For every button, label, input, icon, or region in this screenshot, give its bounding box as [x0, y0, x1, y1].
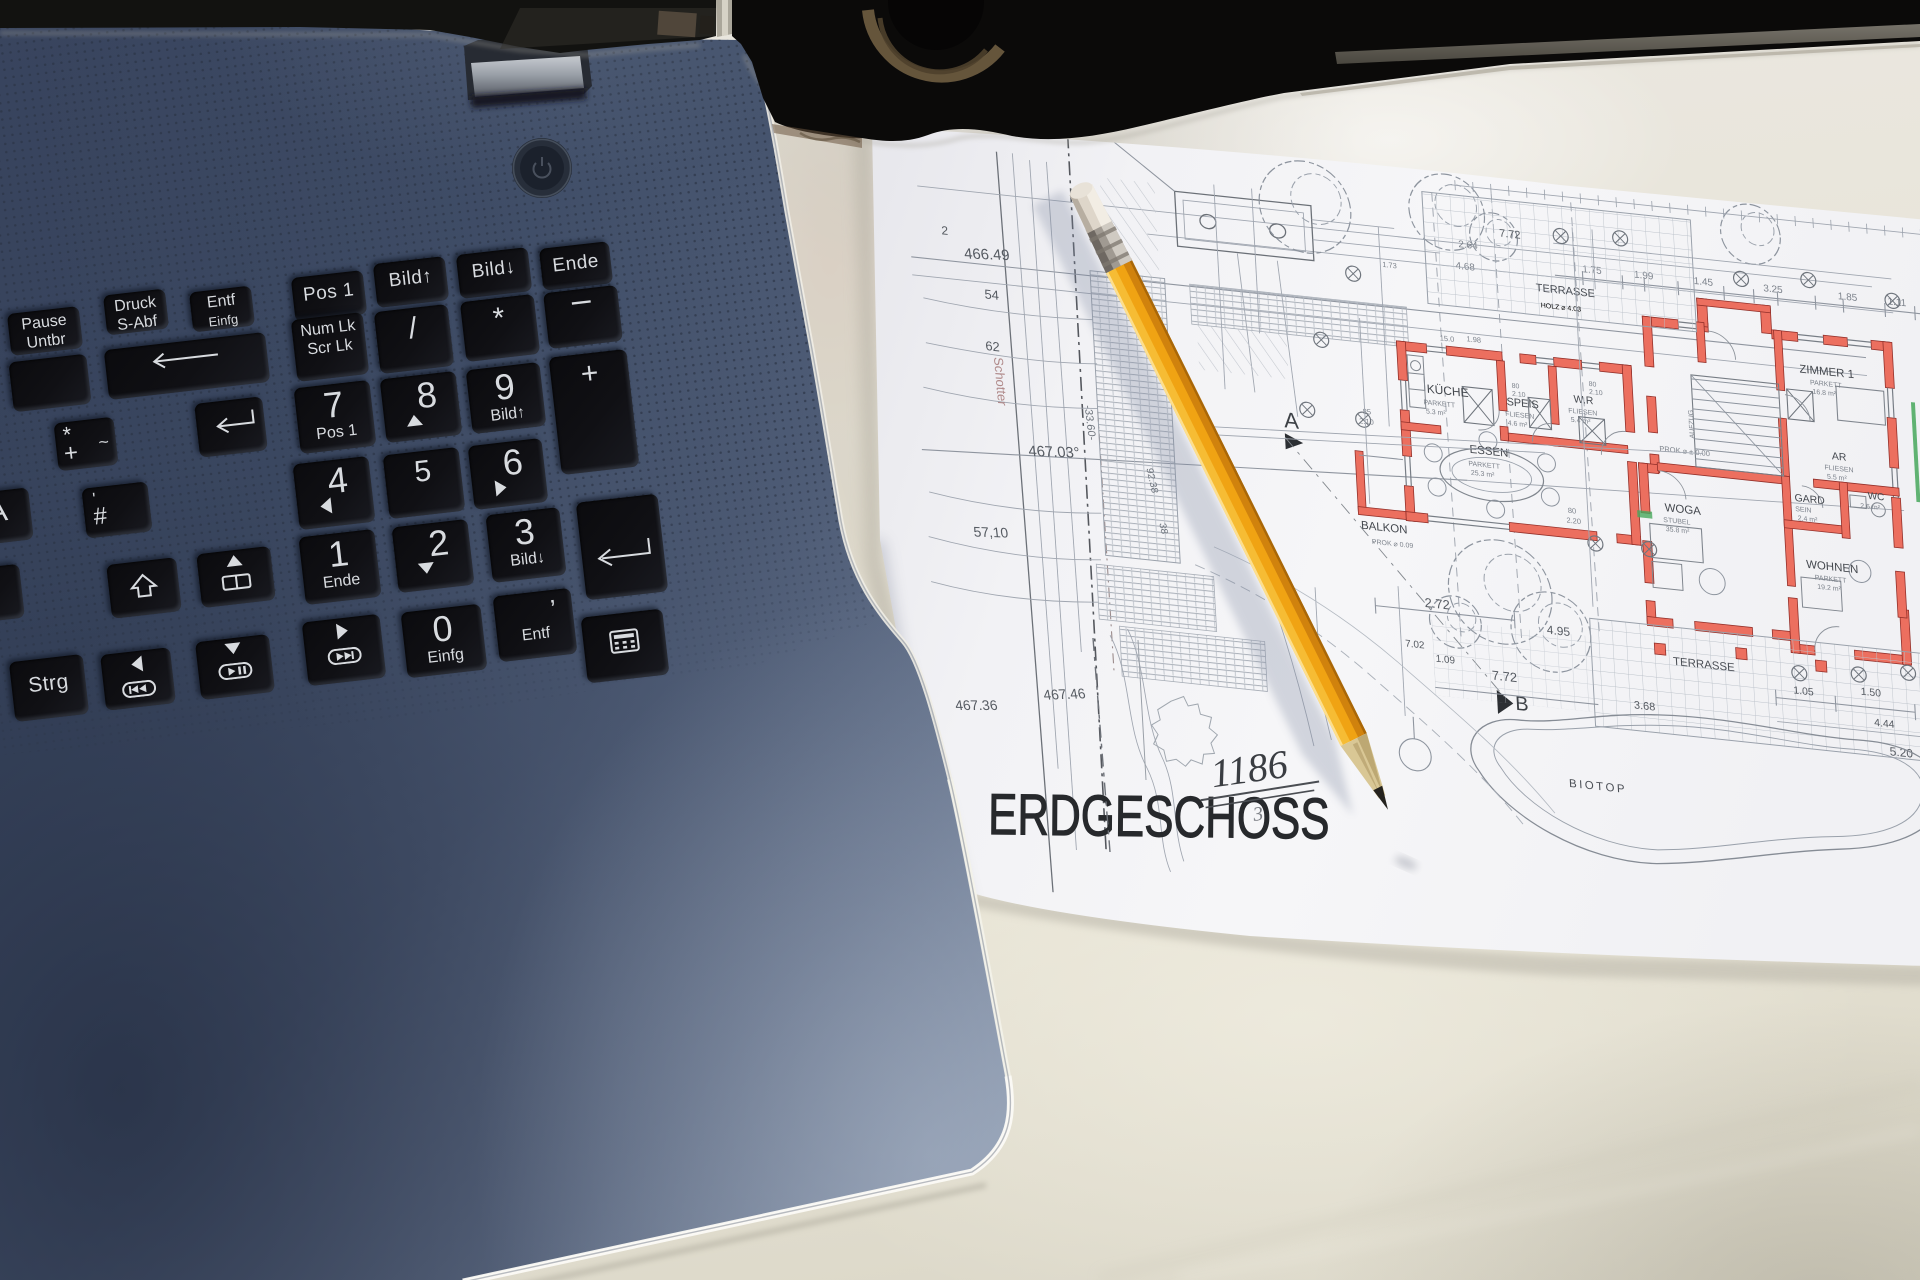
- svg-text:15.0: 15.0: [1440, 333, 1455, 344]
- svg-text:5.20: 5.20: [1889, 744, 1913, 760]
- svg-text:4.44: 4.44: [1874, 717, 1895, 731]
- svg-text:3.68: 3.68: [1634, 699, 1656, 713]
- svg-text:1.05: 1.05: [1793, 684, 1814, 698]
- svg-text:85: 85: [1362, 407, 1371, 417]
- svg-text:4.95: 4.95: [1546, 623, 1570, 639]
- svg-text:80: 80: [1511, 383, 1519, 391]
- svg-text:80: 80: [1588, 381, 1596, 389]
- svg-text:1.98: 1.98: [1466, 334, 1481, 345]
- svg-text:2.10: 2.10: [1589, 389, 1603, 397]
- svg-text:AR: AR: [1832, 450, 1848, 464]
- svg-text:2.20: 2.20: [1566, 516, 1581, 527]
- svg-text:WC: WC: [1867, 491, 1884, 504]
- svg-text:1.50: 1.50: [1860, 686, 1881, 700]
- svg-text:2.10: 2.10: [1512, 391, 1526, 399]
- svg-text:7.72: 7.72: [1492, 668, 1518, 686]
- svg-text:7.02: 7.02: [1405, 639, 1425, 652]
- svg-text:A: A: [1283, 407, 1299, 434]
- svg-text:2.72: 2.72: [1424, 595, 1450, 613]
- svg-text:80: 80: [1568, 506, 1577, 516]
- svg-text:1.09: 1.09: [1435, 654, 1455, 667]
